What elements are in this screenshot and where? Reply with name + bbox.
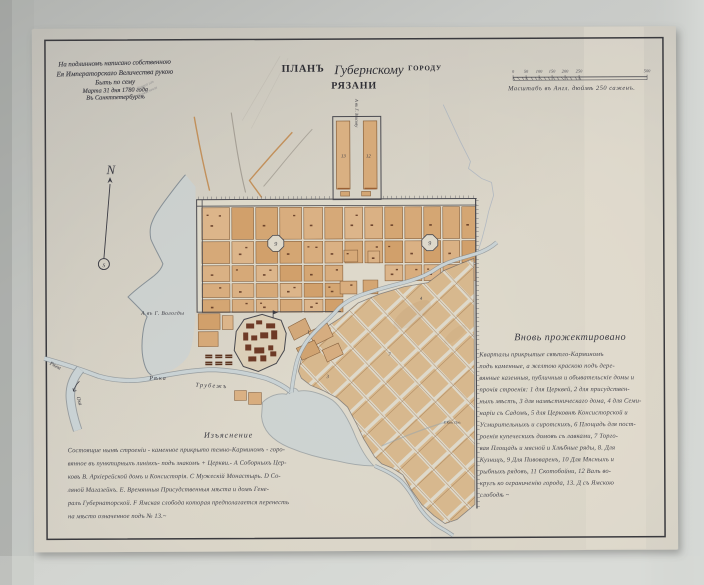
svg-text:наріи съ Садомъ, 5 для Церковн: наріи съ Садомъ, 5 для Церковнѣ Консисто… (480, 409, 629, 417)
svg-text:Вновь прожектировано: Вновь прожектировано (514, 332, 626, 343)
svg-text:вая Площадь и мясной и Хлѣбные: вая Площадь и мясной и Хлѣбные ряды, 8. … (480, 444, 616, 452)
svg-text:ляной Магазейнъ. Е. Времянныя: ляной Магазейнъ. Е. Времянныя Присудстве… (67, 486, 269, 494)
svg-text:на мѣсто означенное подъ № 13.: на мѣсто означенное подъ № 13.~ (68, 513, 167, 520)
svg-text:роенія купеческихъ домовъ съ л: роенія купеческихъ домовъ съ лавками, 7 … (479, 433, 618, 441)
svg-text:Е Кон. Пло.: Е Кон. Пло. (443, 421, 462, 425)
svg-text:кругъ ко ограниченію города, 1: кругъ ко ограниченію города, 13. Д съ Ям… (480, 480, 614, 488)
svg-text:прочія строенія: 1 для Церквей: прочія строенія: 1 для Церквей, 2 для пр… (479, 386, 629, 394)
svg-text:Губернскому: Губернскому (333, 62, 404, 77)
svg-text:ралъ Губернаторской. F Ямская: ралъ Губернаторской. F Ямская слобода ко… (67, 499, 289, 507)
svg-text:13: 13 (341, 155, 346, 160)
svg-text:ПЛАНЪ: ПЛАНЪ (282, 64, 325, 75)
svg-text:S: S (103, 263, 106, 269)
svg-text:Кузницъ, 9 Для Пивоваренъ, 10: Кузницъ, 9 Для Пивоваренъ, 10 Для Мясных… (479, 456, 615, 464)
svg-text:9: 9 (274, 242, 277, 248)
svg-text:500: 500 (644, 68, 651, 73)
svg-text:12: 12 (366, 154, 371, 159)
svg-text:100: 100 (536, 69, 543, 74)
svg-text:ныхъ мѣстъ, 3 для намѣстническ: ныхъ мѣстъ, 3 для намѣстническаго дома, … (479, 398, 641, 406)
svg-text:Усмирительныхъ и сиротскихъ, 6: Усмирительныхъ и сиротскихъ, 6 Площадь д… (480, 421, 636, 429)
svg-text:Состоящие нынѣ строеніи - каме: Состоящие нынѣ строеніи - каменное прикр… (68, 446, 285, 454)
svg-text:250: 250 (576, 69, 583, 74)
svg-text:вянные казенныя, публичныя и о: вянные казенныя, публичныя и обывательск… (479, 374, 634, 382)
svg-text:150: 150 (549, 69, 556, 74)
svg-text:РЯЗАНИ: РЯЗАНИ (331, 80, 377, 91)
svg-text:Масштабъ въ Англ. дюймѣ 250 са: Масштабъ въ Англ. дюймѣ 250 саженъ. (507, 85, 635, 93)
svg-text:Рѣка: Рѣка (148, 376, 166, 382)
svg-text:слободѣ ~: слободѣ ~ (480, 492, 510, 499)
svg-text:А въ Г. Москву: А въ Г. Москву (354, 98, 359, 128)
svg-text:9: 9 (428, 241, 431, 247)
svg-text:Изъяснение: Изъяснение (203, 430, 253, 439)
svg-text:1: 1 (307, 329, 309, 334)
svg-text:ковъ В. Архіерейской домъ и Ко: ковъ В. Архіерейской домъ и Консисторія.… (68, 473, 281, 481)
svg-text:вянное въ пунктирныхъ линіяхъ-: вянное въ пунктирныхъ линіяхъ- подъ знак… (68, 460, 287, 468)
svg-text:Кварталы прикрытые свѣтло-Карм: Кварталы прикрытые свѣтло-Карминомъ (478, 351, 604, 359)
svg-text:N: N (105, 162, 116, 177)
svg-text:200: 200 (562, 69, 569, 74)
svg-text:рыбныхъ рядовъ, 11 Скотобойни,: рыбныхъ рядовъ, 11 Скотобойни, 12 Валъ в… (479, 468, 611, 476)
svg-text:Быть по сему: Быть по сему (94, 79, 136, 87)
svg-text:А въ Г. Вологды: А въ Г. Вологды (140, 310, 184, 317)
svg-text:ГОРОДУ: ГОРОДУ (408, 64, 442, 72)
svg-text:подъ каменные, а желтою краско: подъ каменные, а желтою краскою подъ дер… (479, 363, 614, 371)
